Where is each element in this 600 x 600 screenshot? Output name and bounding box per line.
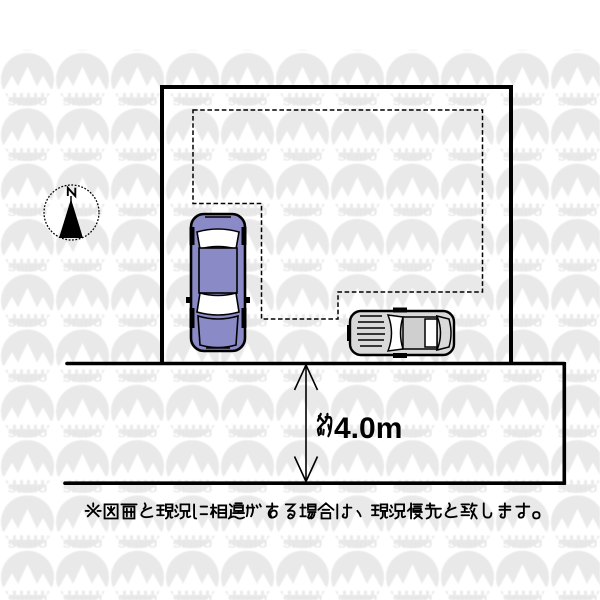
svg-text:4.0m: 4.0m [334,412,402,445]
